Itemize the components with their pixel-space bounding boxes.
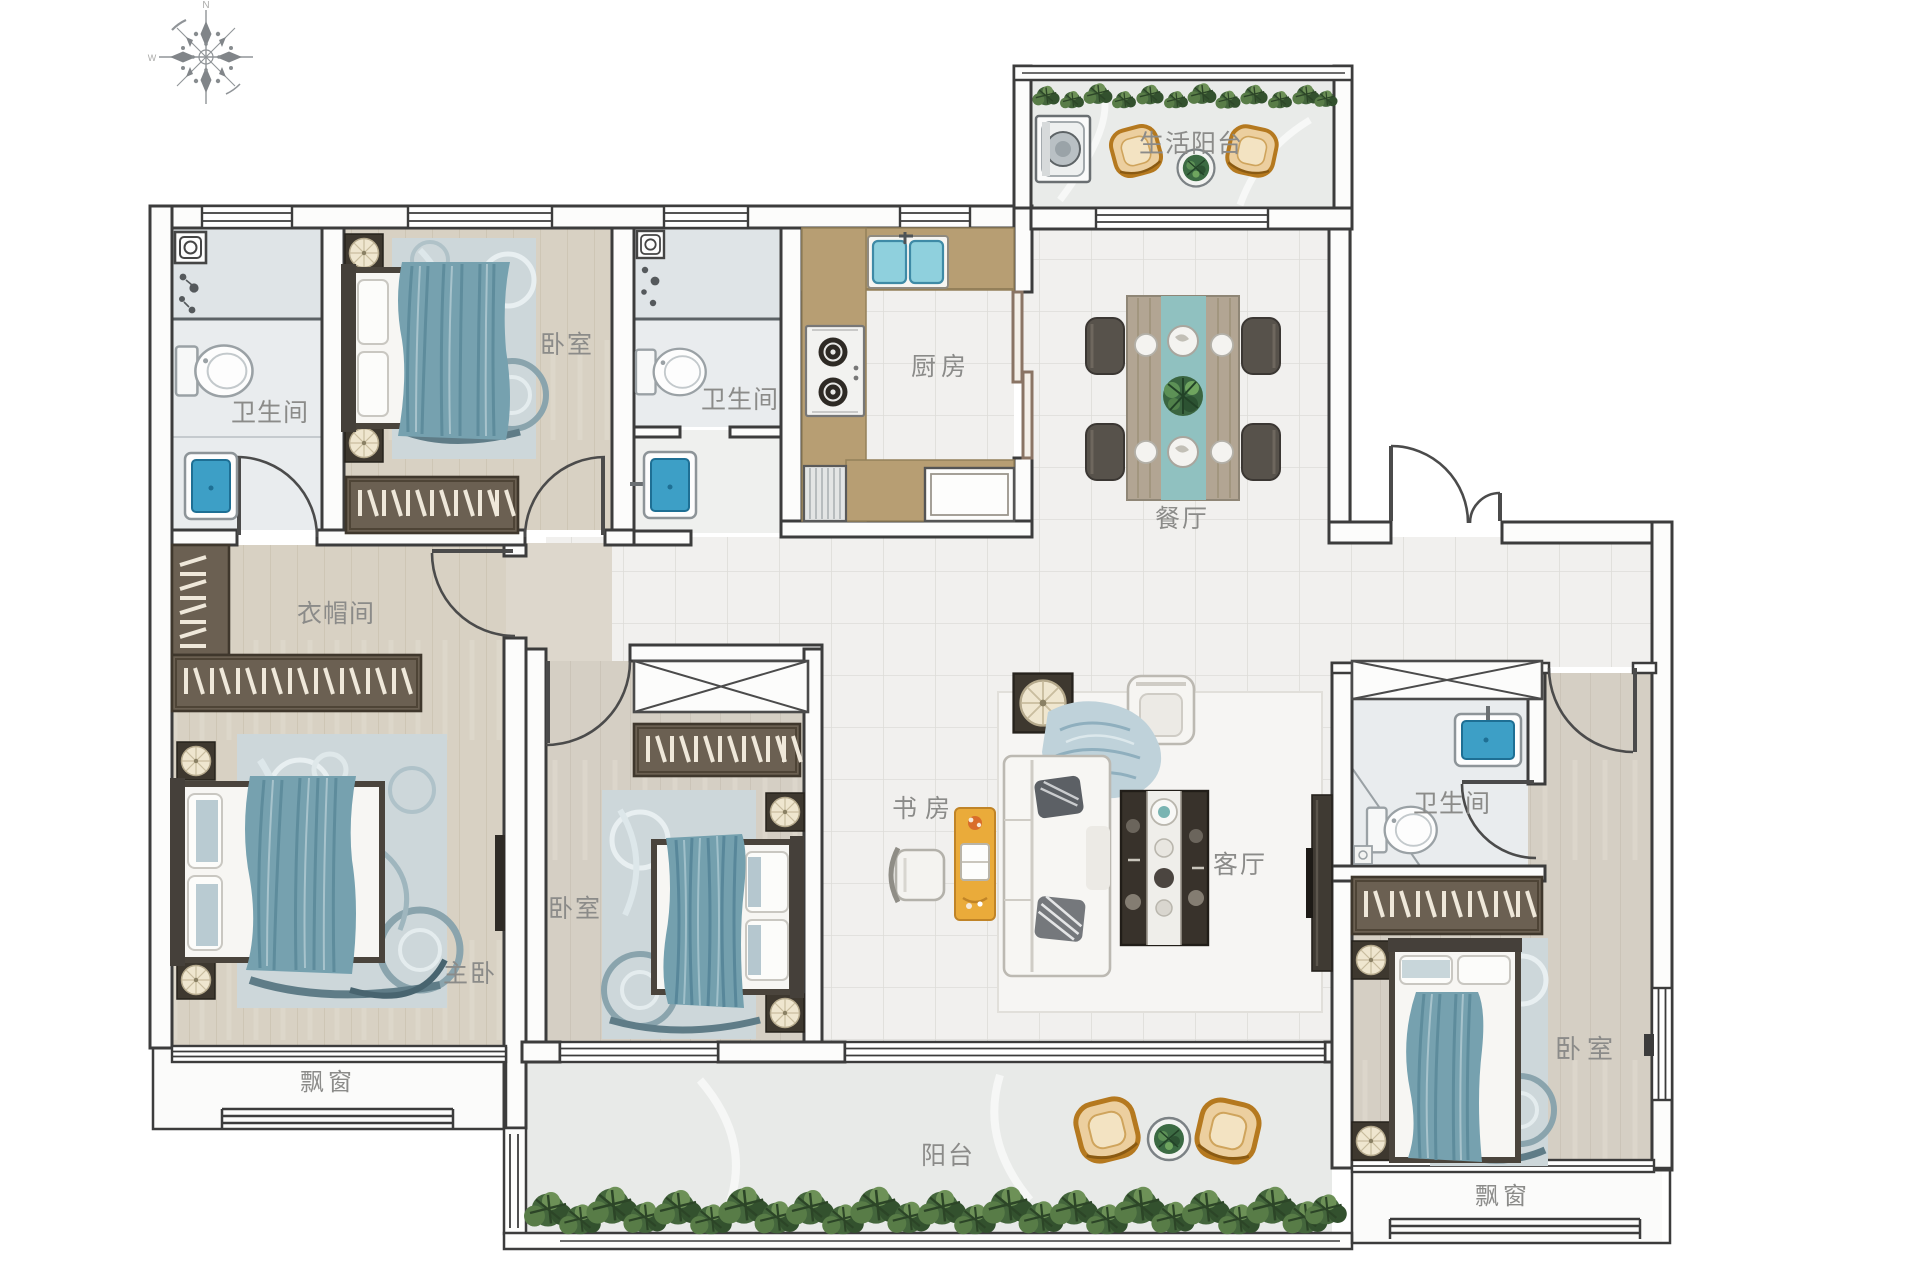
svg-text:卧室: 卧室	[548, 895, 602, 923]
svg-text:卧室: 卧室	[1555, 1034, 1619, 1064]
svg-text:阳台: 阳台	[921, 1142, 975, 1170]
svg-text:生活阳台: 生活阳台	[1139, 130, 1243, 158]
svg-text:卧室: 卧室	[540, 331, 594, 359]
svg-text:N: N	[202, 0, 209, 11]
svg-text:餐厅: 餐厅	[1155, 505, 1209, 533]
svg-text:飘窗: 飘窗	[1475, 1183, 1531, 1210]
svg-text:衣帽间: 衣帽间	[297, 600, 375, 628]
svg-text:书房: 书房	[892, 795, 958, 823]
svg-text:卫生间: 卫生间	[231, 399, 309, 427]
svg-text:客厅: 客厅	[1213, 851, 1267, 879]
svg-text:厨房: 厨房	[911, 353, 971, 381]
svg-text:卫生间: 卫生间	[1413, 790, 1491, 818]
svg-text:W: W	[148, 53, 157, 63]
svg-text:卫生间: 卫生间	[701, 386, 779, 414]
svg-text:主卧: 主卧	[443, 960, 497, 988]
svg-text:飘窗: 飘窗	[300, 1069, 356, 1096]
